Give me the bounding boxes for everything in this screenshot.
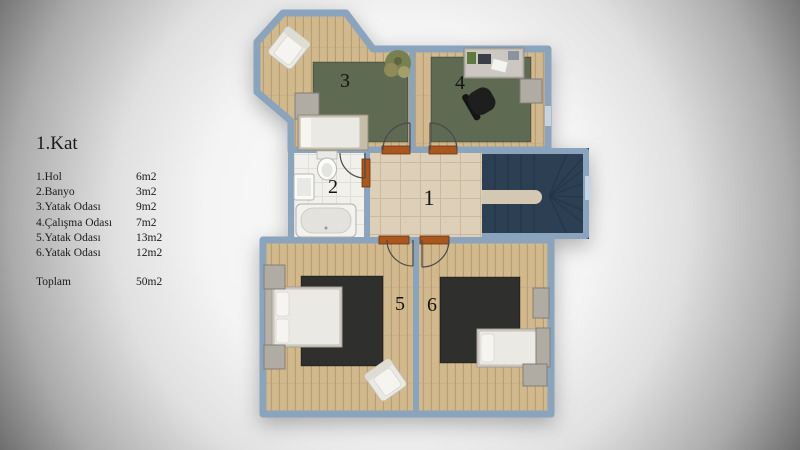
room-area: 6m2 — [136, 170, 206, 185]
room-number-label: 1 — [424, 185, 435, 210]
legend-row: 6.Yatak Odası 12m2 — [36, 246, 206, 261]
pillow-icon — [481, 334, 494, 362]
floor-plan: 1 2 3 4 5 6 — [257, 13, 591, 414]
room-area: 12m2 — [136, 246, 206, 261]
room-name: 5.Yatak Odası — [36, 231, 136, 246]
room-number-label: 2 — [328, 176, 338, 198]
door-threshold — [382, 146, 410, 154]
single-bed-icon — [477, 328, 550, 367]
radiator-icon — [523, 364, 547, 386]
book-icon — [467, 52, 476, 64]
door-threshold — [420, 236, 449, 244]
room-name: 1.Hol — [36, 170, 136, 185]
room-name: 3.Yatak Odası — [36, 200, 136, 215]
room-number-label: 4 — [455, 72, 465, 94]
total-label: Toplam — [36, 275, 136, 290]
room-area: 7m2 — [136, 216, 206, 231]
radiator-icon — [520, 79, 542, 103]
radiator-icon — [533, 288, 549, 318]
legend-total-row: Toplam 50m2 — [36, 275, 206, 290]
bed-icon — [298, 115, 368, 150]
legend-row: 2.Banyo 3m2 — [36, 185, 206, 200]
pillow-icon — [276, 292, 289, 316]
window-marker — [545, 106, 551, 126]
room-number-label: 3 — [340, 70, 350, 92]
radiator-icon — [264, 265, 285, 289]
window-marker — [585, 176, 591, 200]
legend-row: 4.Çalışma Odası 7m2 — [36, 216, 206, 231]
door-threshold — [362, 159, 370, 187]
room-area: 9m2 — [136, 200, 206, 215]
floor-title: 1.Kat — [36, 134, 206, 154]
legend: 1.Kat 1.Hol 6m2 2.Banyo 3m2 3.Yatak Odas… — [36, 134, 206, 290]
staircase — [482, 148, 589, 239]
pillow-icon — [276, 319, 289, 343]
room-area: 13m2 — [136, 231, 206, 246]
legend-rows: 1.Hol 6m2 2.Banyo 3m2 3.Yatak Odası 9m2 … — [36, 170, 206, 290]
stair-landing — [482, 190, 542, 204]
room-area: 3m2 — [136, 185, 206, 200]
door-threshold — [429, 146, 457, 154]
legend-row: 1.Hol 6m2 — [36, 170, 206, 185]
bathtub-icon — [296, 204, 356, 237]
nightstand-icon — [536, 328, 550, 367]
radiator-icon — [264, 345, 285, 369]
legend-row: 5.Yatak Odası 13m2 — [36, 231, 206, 246]
sink-icon — [294, 174, 314, 200]
laptop-icon — [478, 54, 491, 64]
double-bed-icon — [265, 286, 342, 348]
legend-row: 3.Yatak Odası 9m2 — [36, 200, 206, 215]
room-number-label: 6 — [427, 294, 437, 316]
desk-icon — [464, 48, 524, 78]
room-name: 6.Yatak Odası — [36, 246, 136, 261]
total-area: 50m2 — [136, 275, 206, 290]
room-name: 2.Banyo — [36, 185, 136, 200]
room-name: 4.Çalışma Odası — [36, 216, 136, 231]
door-threshold — [379, 236, 409, 244]
room-number-label: 5 — [395, 293, 405, 315]
